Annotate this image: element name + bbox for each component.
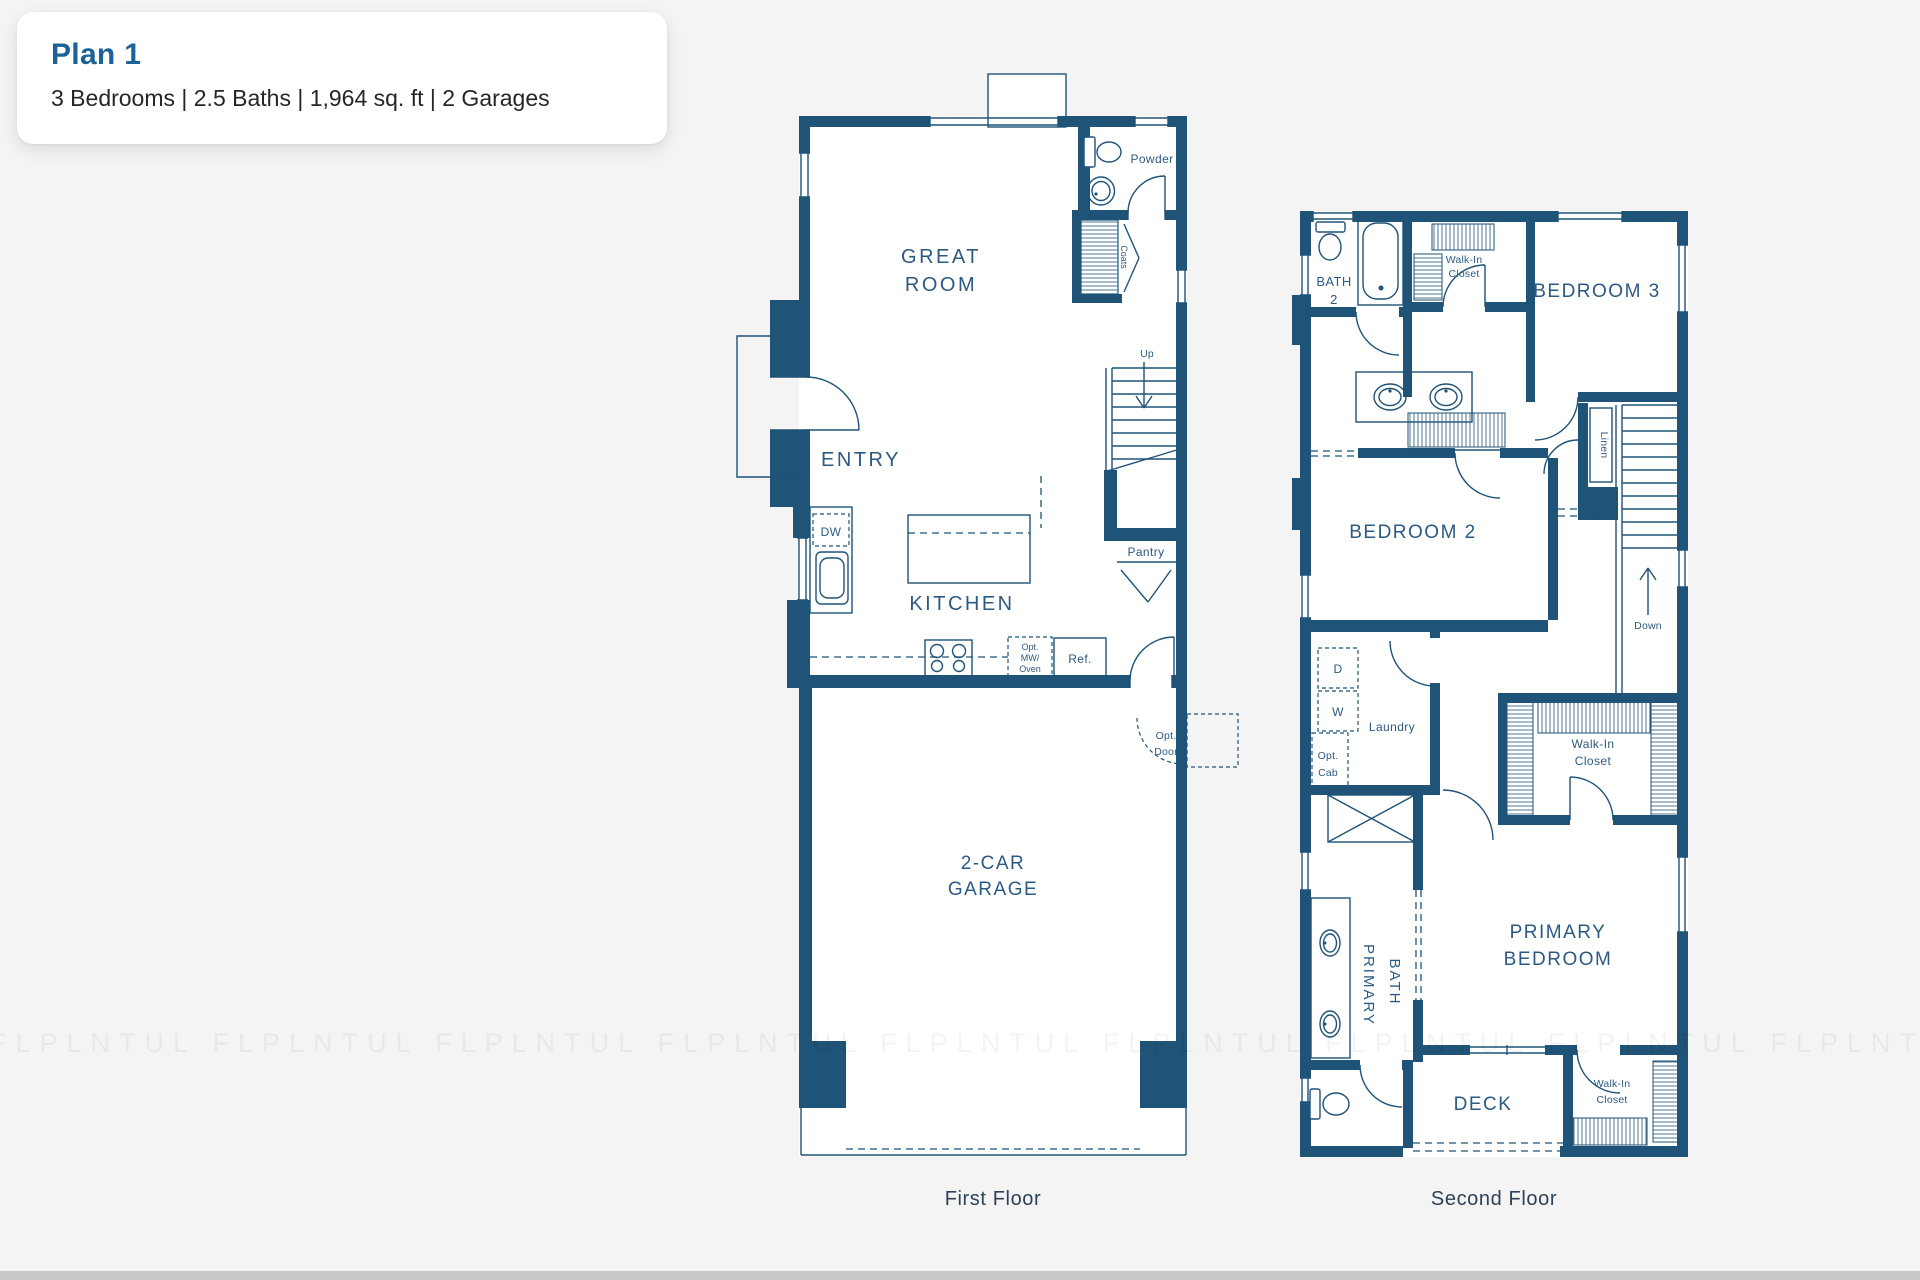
deck-closet-label: Closet <box>1597 1094 1628 1106</box>
opt-door-label: Door <box>1154 746 1178 758</box>
dryer-label: D <box>1333 662 1342 676</box>
deck-closet-label: Walk-In <box>1594 1078 1631 1090</box>
garage-label: 2-CAR <box>961 853 1026 874</box>
great-room-label: GREAT <box>901 246 981 268</box>
powder-label: Powder <box>1130 152 1173 166</box>
primary-bedroom-label: PRIMARY <box>1510 922 1607 943</box>
pantry-label: Pantry <box>1127 545 1164 559</box>
kitchen-label: KITCHEN <box>909 593 1014 615</box>
ref-label: Ref. <box>1068 652 1092 666</box>
primary-closet-label: Closet <box>1575 754 1612 768</box>
opt-mw-oven-label: Oven <box>1019 664 1041 674</box>
first-floor-caption: First Floor <box>863 1188 1123 1211</box>
bath2-label: BATH <box>1316 274 1351 289</box>
floor-plan-page: GREAT ROOM ENTRY KITCHEN 2-CAR GARAGE Po… <box>0 0 1920 1280</box>
primary-bath-label: BATH <box>1386 959 1403 1006</box>
bedroom2-label: BEDROOM 2 <box>1349 522 1477 543</box>
plan-summary-card: Plan 1 3 Bedrooms | 2.5 Baths | 1,964 sq… <box>17 12 667 144</box>
down-label: Down <box>1634 620 1662 632</box>
opt-door-label: Opt. <box>1156 730 1177 742</box>
primary-bedroom-label: BEDROOM <box>1504 949 1613 970</box>
plan-specs: 3 Bedrooms | 2.5 Baths | 1,964 sq. ft | … <box>51 85 633 112</box>
second-floor-plan: BATH 2 Walk-In Closet BEDROOM 3 BEDROOM … <box>1292 211 1688 1157</box>
opt-mw-oven-label: MW/ <box>1021 653 1040 663</box>
powder-toilet <box>1084 137 1095 167</box>
linen-label: Linen <box>1598 432 1610 459</box>
floor-plan-canvas: GREAT ROOM ENTRY KITCHEN 2-CAR GARAGE Po… <box>0 0 1920 1280</box>
primary-closet-label: Walk-In <box>1571 737 1614 751</box>
bedroom3-closet-label: Walk-In <box>1446 254 1483 266</box>
second-floor-footprint <box>1300 211 1688 1157</box>
bedroom2-closet <box>1408 413 1505 450</box>
first-floor-footprint <box>799 116 1187 1157</box>
first-floor-plan: GREAT ROOM ENTRY KITCHEN 2-CAR GARAGE Po… <box>737 74 1238 1157</box>
second-floor-caption: Second Floor <box>1364 1188 1624 1211</box>
bath2-label: 2 <box>1330 292 1338 307</box>
great-room-label: ROOM <box>905 274 977 296</box>
bottom-bar <box>0 1271 1920 1280</box>
opt-cab-label: Cab <box>1318 767 1338 779</box>
dishwasher-label: DW <box>821 525 842 539</box>
laundry-label: Laundry <box>1369 720 1415 734</box>
opt-cab-label: Opt. <box>1318 750 1339 762</box>
great-room-bay <box>988 74 1066 127</box>
washer-label: W <box>1332 705 1344 719</box>
primary-bath-label: PRIMARY <box>1360 944 1377 1026</box>
bedroom3-label: BEDROOM 3 <box>1533 281 1661 302</box>
plan-title: Plan 1 <box>51 38 633 72</box>
bedroom3-closet-label: Closet <box>1449 268 1480 280</box>
up-label: Up <box>1140 348 1154 360</box>
entry-label: ENTRY <box>821 449 901 471</box>
deck-label: DECK <box>1454 1094 1513 1115</box>
garage-label: GARAGE <box>948 879 1038 900</box>
primary-toilet <box>1310 1089 1320 1119</box>
coats-label: Coats <box>1119 245 1129 269</box>
opt-mw-oven-label: Opt. <box>1021 642 1038 652</box>
bath2-toilet <box>1316 222 1345 232</box>
